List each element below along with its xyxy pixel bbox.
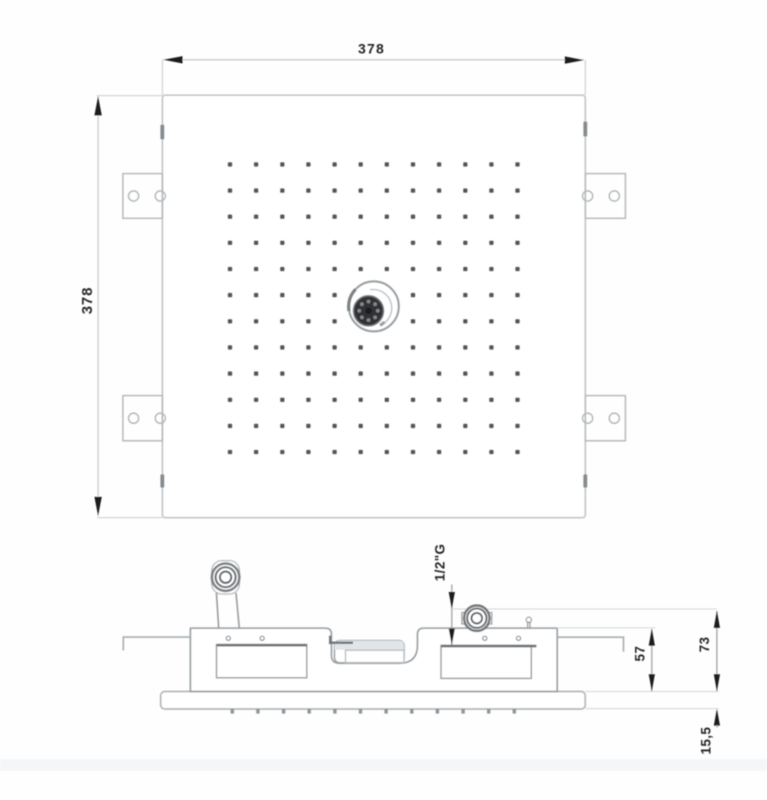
svg-text:73: 73 <box>697 637 712 653</box>
svg-text:378: 378 <box>79 287 96 314</box>
svg-text:57: 57 <box>633 646 648 662</box>
svg-text:15,5: 15,5 <box>699 727 714 755</box>
svg-text:378: 378 <box>358 41 385 57</box>
svg-text:1/2"G: 1/2"G <box>432 544 447 582</box>
